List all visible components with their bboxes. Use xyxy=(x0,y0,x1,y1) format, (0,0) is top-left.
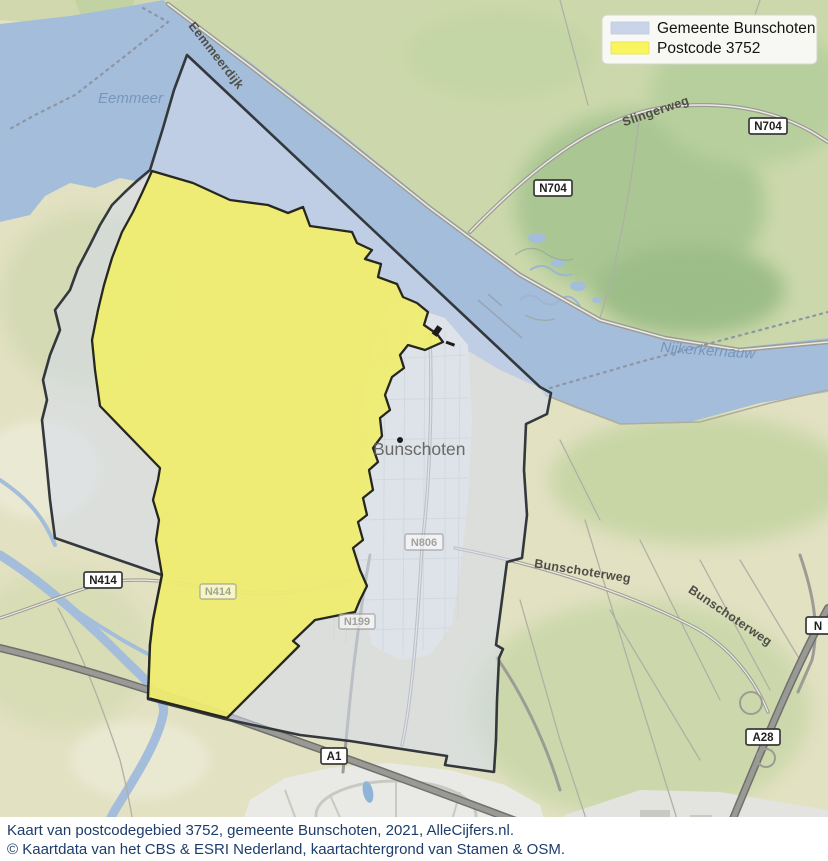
shield-n806-faded: N806 xyxy=(405,534,443,550)
shield-edge-partial: N xyxy=(806,617,828,634)
shield-n414-faded: N414 xyxy=(200,584,236,599)
svg-text:N806: N806 xyxy=(411,537,437,549)
label-eemmeer: Eemmeer xyxy=(98,90,164,107)
label-city-bunschoten: Bunschoten xyxy=(373,439,465,459)
shield-n199-faded: N199 xyxy=(339,614,375,629)
svg-text:N704: N704 xyxy=(539,183,567,195)
shield-a28: A28 xyxy=(746,729,780,745)
svg-text:N414: N414 xyxy=(205,586,232,598)
shield-n414: N414 xyxy=(84,572,122,588)
svg-text:N199: N199 xyxy=(344,616,370,628)
svg-text:N704: N704 xyxy=(754,121,782,133)
legend: Gemeente Bunschoten Postcode 3752 xyxy=(602,15,817,64)
legend-swatch-gemeente xyxy=(611,22,649,34)
legend-swatch-postcode xyxy=(611,42,649,54)
legend-label-gemeente: Gemeente Bunschoten xyxy=(657,20,816,37)
svg-text:A28: A28 xyxy=(752,732,774,744)
map-screenshot: Eemmeer Nijkerkernauw Eemmeerdijk Slinge… xyxy=(0,0,828,861)
legend-label-postcode: Postcode 3752 xyxy=(657,40,760,57)
svg-text:A1: A1 xyxy=(327,751,342,763)
shield-n704-east: N704 xyxy=(749,118,787,134)
svg-text:N: N xyxy=(814,621,822,633)
caption-line-1: Kaart van postcodegebied 3752, gemeente … xyxy=(7,822,514,839)
shield-n704-west: N704 xyxy=(534,180,572,196)
map-canvas: Eemmeer Nijkerkernauw Eemmeerdijk Slinge… xyxy=(0,0,828,861)
shield-a1: A1 xyxy=(321,748,347,764)
svg-text:N414: N414 xyxy=(89,575,117,587)
caption: Kaart van postcodegebied 3752, gemeente … xyxy=(0,817,828,861)
caption-line-2: © Kaartdata van het CBS & ESRI Nederland… xyxy=(7,841,565,858)
